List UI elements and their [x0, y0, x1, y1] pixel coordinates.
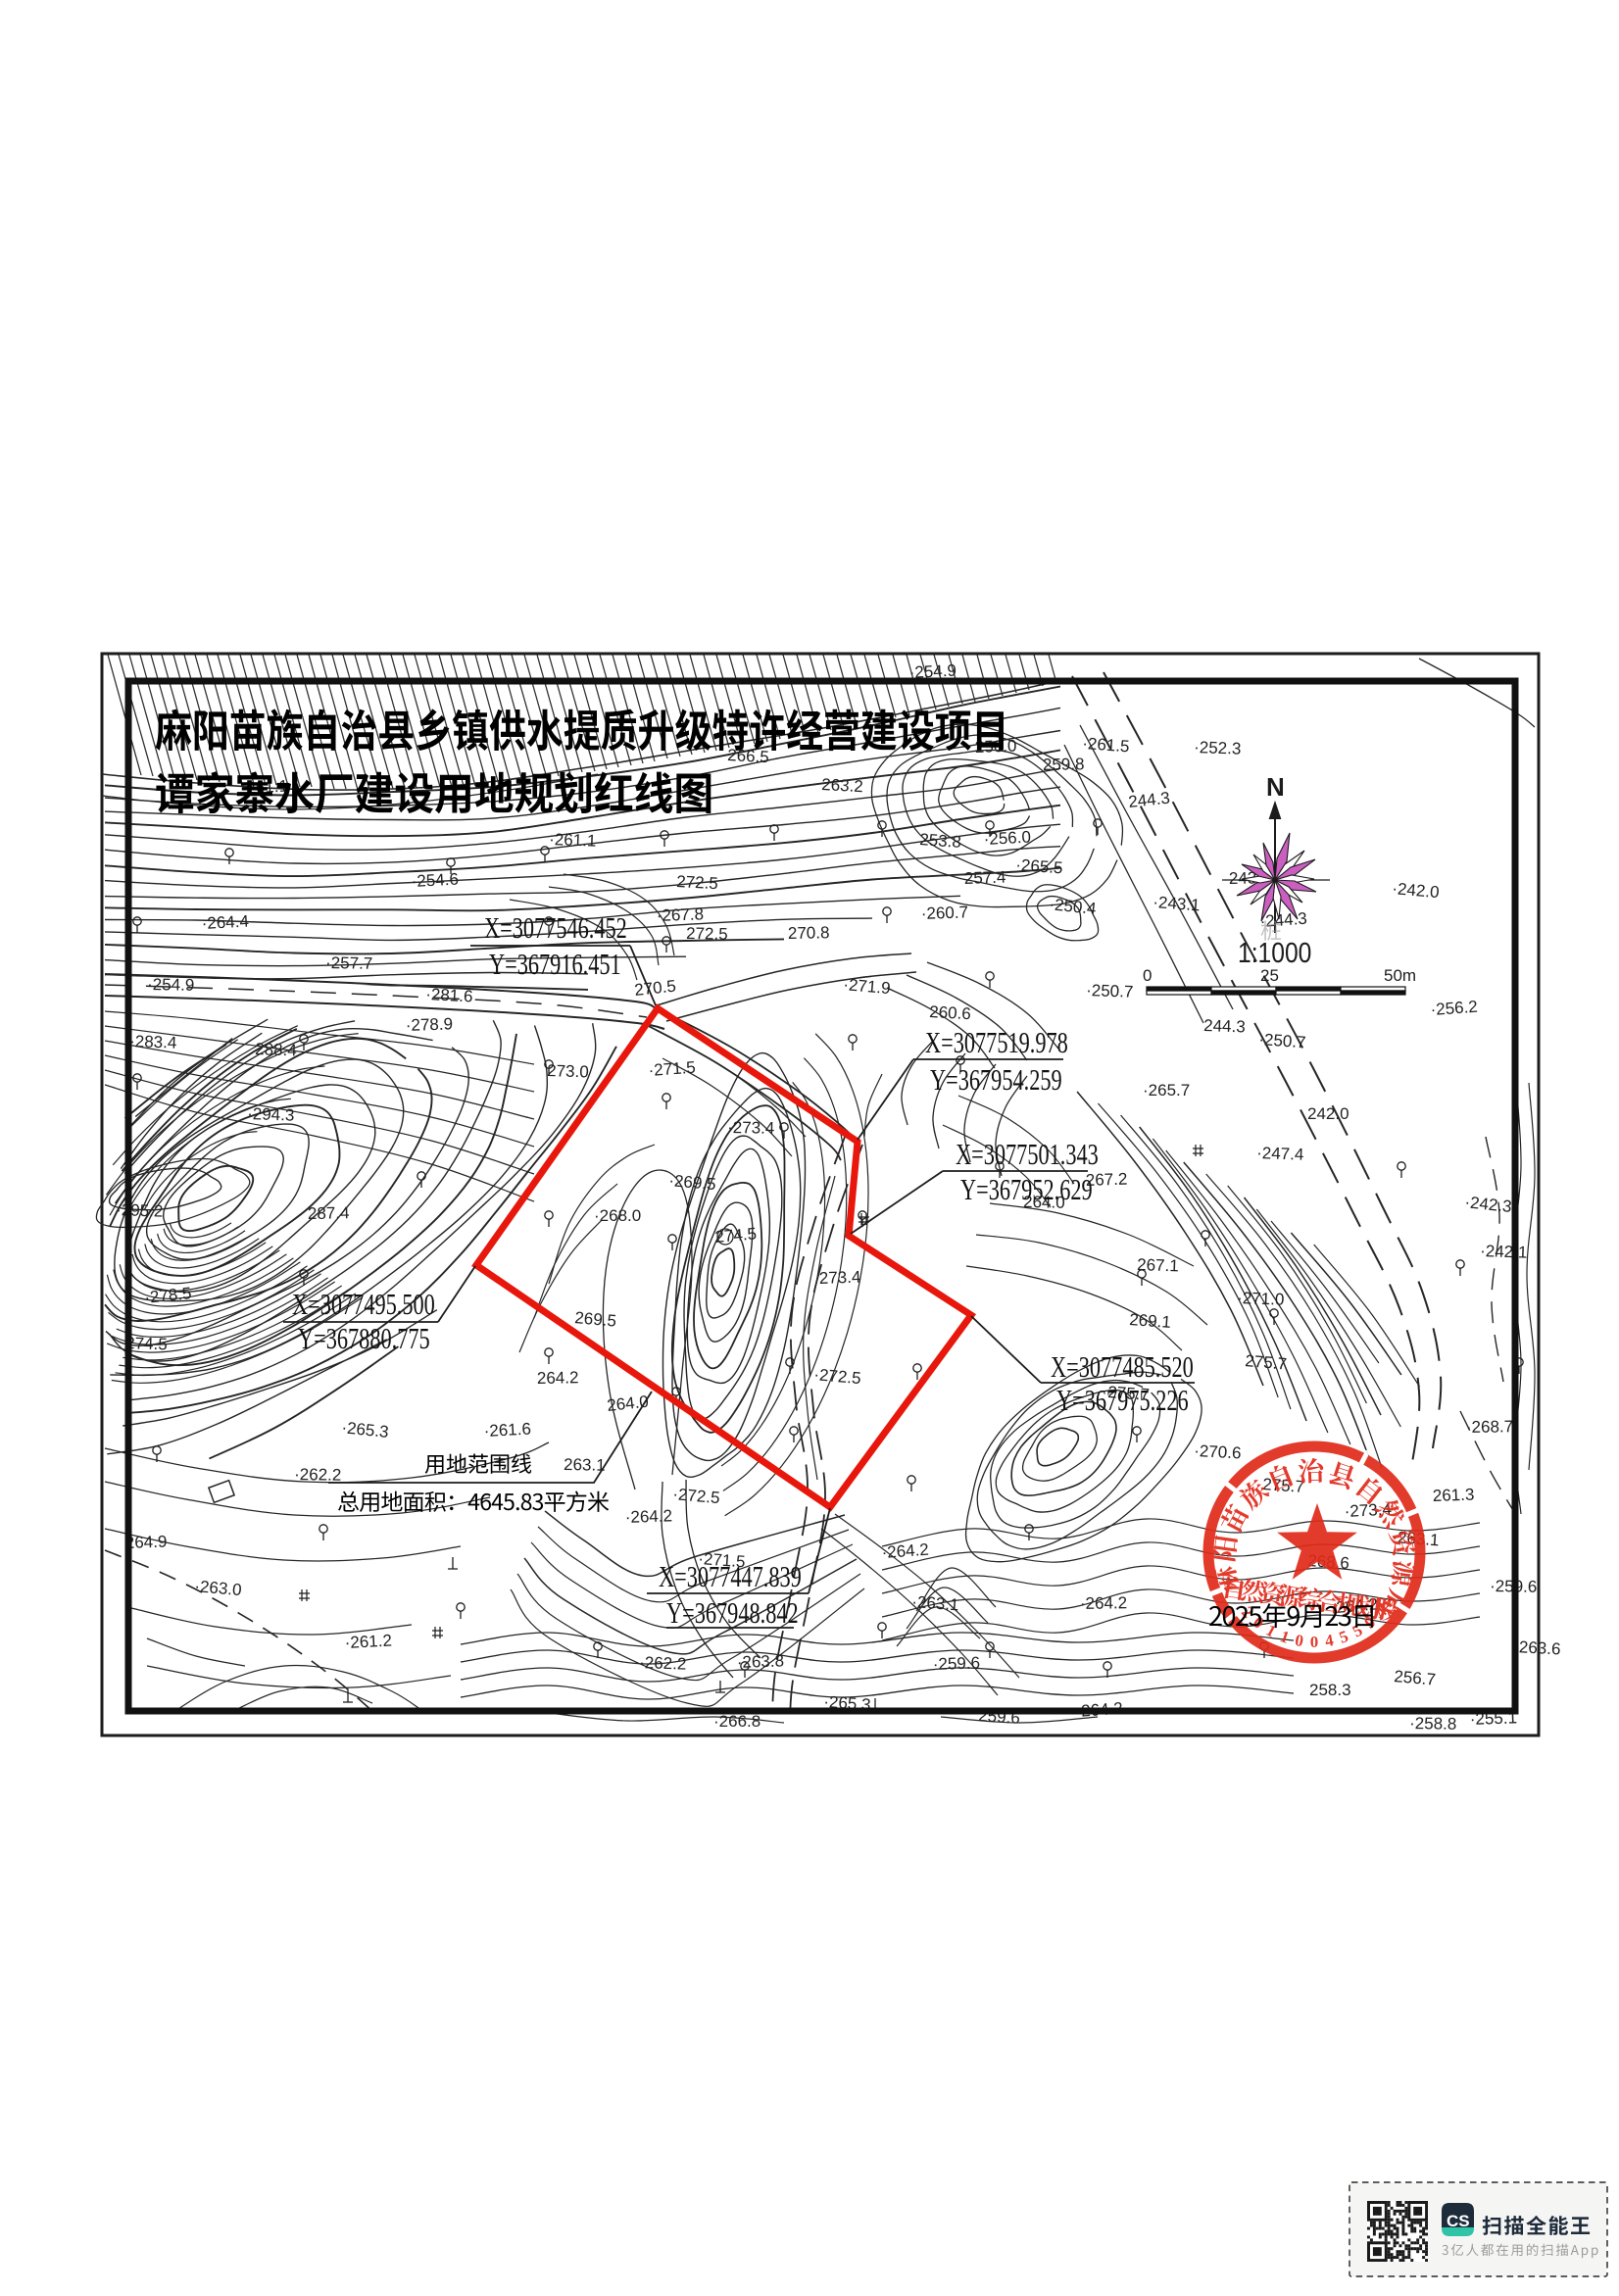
- svg-text:Y=367952.629: Y=367952.629: [960, 1172, 1093, 1205]
- svg-text:X=3077519.978: X=3077519.978: [925, 1025, 1068, 1058]
- svg-text:·264.2: ·264.2: [1080, 1593, 1128, 1613]
- svg-text:·271.0: ·271.0: [1237, 1289, 1285, 1309]
- svg-text:·264.4: ·264.4: [201, 911, 249, 932]
- svg-text:244.3: 244.3: [1203, 1016, 1246, 1036]
- svg-text:Y=367954.259: Y=367954.259: [930, 1062, 1062, 1096]
- svg-text:·267.8: ·267.8: [656, 904, 704, 925]
- svg-text:·263.6: ·263.6: [1513, 1637, 1561, 1658]
- svg-text:273.4: 273.4: [818, 1268, 860, 1288]
- svg-text:·281.6: ·281.6: [425, 985, 473, 1005]
- svg-text:·273.4: ·273.4: [727, 1118, 775, 1138]
- svg-text:275.7: 275.7: [1245, 1351, 1288, 1374]
- svg-text:X=3077495.500: X=3077495.500: [292, 1287, 435, 1320]
- svg-text:·265.7: ·265.7: [1143, 1081, 1190, 1099]
- svg-text:256.7: 256.7: [1394, 1667, 1437, 1689]
- svg-text:X=3077501.343: X=3077501.343: [956, 1137, 1099, 1170]
- svg-text:·263.1: ·263.1: [911, 1592, 959, 1614]
- svg-text:·242.1: ·242.1: [1480, 1242, 1528, 1262]
- svg-text:0: 0: [1143, 966, 1152, 985]
- svg-text:0: 0: [1310, 1633, 1319, 1651]
- svg-text:·256.2: ·256.2: [1430, 998, 1478, 1019]
- svg-text:X=3077546.452: X=3077546.452: [484, 910, 627, 944]
- svg-text:·263.8: ·263.8: [736, 1651, 784, 1672]
- svg-text:CS: CS: [1447, 2212, 1470, 2230]
- svg-text:·256.0: ·256.0: [983, 827, 1031, 848]
- svg-text:·258.8: ·258.8: [1409, 1714, 1457, 1734]
- svg-text:·257.7: ·257.7: [325, 953, 373, 973]
- svg-text:258.3: 258.3: [1309, 1681, 1351, 1699]
- svg-text:50m: 50m: [1384, 966, 1416, 985]
- svg-text:·259.6: ·259.6: [932, 1653, 980, 1674]
- svg-text:274.5: 274.5: [714, 1224, 758, 1246]
- svg-text:257.4: 257.4: [963, 868, 1006, 888]
- svg-text:Y=367975.226: Y=367975.226: [1056, 1383, 1189, 1416]
- svg-text:25: 25: [1260, 966, 1279, 985]
- svg-text:242.0: 242.0: [1307, 1104, 1349, 1123]
- svg-text:·283.4: ·283.4: [129, 1032, 177, 1052]
- svg-text:·266.8: ·266.8: [713, 1712, 760, 1731]
- svg-text:260.6: 260.6: [929, 1002, 971, 1023]
- svg-text:Y=367916.451: Y=367916.451: [489, 947, 621, 980]
- svg-text:·294.3: ·294.3: [247, 1104, 295, 1125]
- svg-text:269.1: 269.1: [1129, 1310, 1172, 1332]
- svg-text:·295.2: ·295.2: [116, 1200, 164, 1221]
- svg-text:263.2: 263.2: [821, 775, 863, 796]
- svg-text:261.3: 261.3: [1432, 1486, 1474, 1505]
- svg-text:264.2: 264.2: [537, 1368, 579, 1388]
- svg-text:Y=367880.775: Y=367880.775: [298, 1321, 430, 1354]
- svg-text:·250.7: ·250.7: [1086, 981, 1134, 1001]
- svg-text:Y=367948.842: Y=367948.842: [666, 1595, 799, 1629]
- svg-text:X=3077447.839: X=3077447.839: [659, 1559, 802, 1592]
- svg-text:272.5: 272.5: [686, 924, 728, 944]
- svg-text:·278.9: ·278.9: [405, 1014, 453, 1035]
- svg-text:·264.2: ·264.2: [881, 1540, 929, 1562]
- svg-text:253.8: 253.8: [919, 830, 962, 852]
- svg-text:267.1: 267.1: [1137, 1255, 1179, 1275]
- svg-text:·261.5: ·261.5: [1082, 734, 1130, 756]
- svg-text:272.5: 272.5: [676, 872, 718, 893]
- svg-text:·252.3: ·252.3: [1194, 738, 1242, 758]
- svg-text:273.0: 273.0: [547, 1061, 589, 1081]
- svg-text:1:1000: 1:1000: [1238, 937, 1311, 968]
- svg-text:·262.2: ·262.2: [294, 1465, 342, 1485]
- svg-text:·260.7: ·260.7: [920, 903, 968, 923]
- svg-text:266.5: 266.5: [727, 746, 769, 766]
- svg-text:·271.5: ·271.5: [648, 1058, 696, 1080]
- svg-text:·268.7: ·268.7: [1466, 1417, 1514, 1437]
- svg-text:288.4: 288.4: [255, 1040, 297, 1059]
- svg-text:·261.1: ·261.1: [549, 830, 597, 851]
- svg-text:·254.9: ·254.9: [147, 975, 195, 995]
- svg-text:287.4: 287.4: [308, 1203, 350, 1223]
- svg-text:263.1: 263.1: [564, 1455, 606, 1475]
- svg-text:270.8: 270.8: [788, 923, 830, 943]
- svg-text:·262.2: ·262.2: [639, 1653, 687, 1674]
- svg-text:N: N: [1266, 772, 1285, 802]
- svg-text:·265.5: ·265.5: [1015, 855, 1063, 877]
- svg-text:·250.7: ·250.7: [1258, 1030, 1306, 1051]
- svg-text:269.5: 269.5: [574, 1308, 617, 1331]
- svg-text:·261.2: ·261.2: [344, 1631, 392, 1651]
- svg-text:X=3077485.520: X=3077485.520: [1051, 1349, 1194, 1383]
- svg-text:·261.6: ·261.6: [483, 1419, 531, 1440]
- svg-text:·268.0: ·268.0: [594, 1206, 641, 1225]
- svg-text:·254.6: ·254.6: [411, 869, 459, 890]
- svg-text:259.8: 259.8: [1043, 755, 1085, 774]
- svg-text:·247.4: ·247.4: [1256, 1144, 1304, 1164]
- svg-text:·264.2: ·264.2: [624, 1506, 672, 1527]
- svg-text:·270.6: ·270.6: [1194, 1441, 1242, 1462]
- svg-text:·243.1: ·243.1: [1153, 893, 1201, 914]
